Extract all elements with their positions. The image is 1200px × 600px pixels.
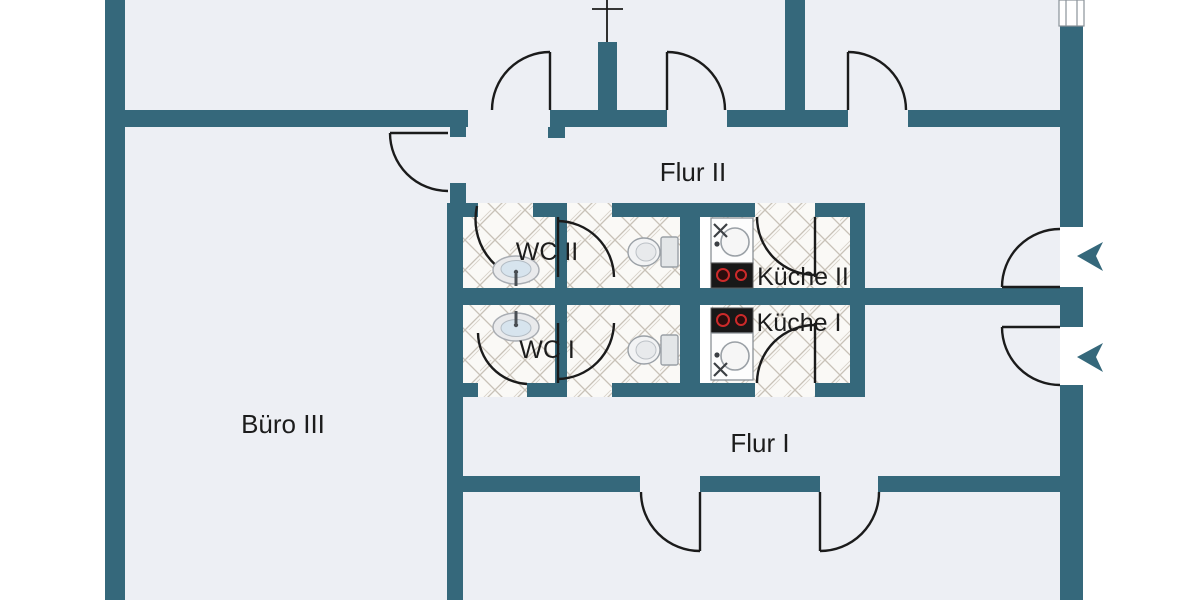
kitchen-unit-icon: [711, 218, 753, 288]
stove-icon: [711, 263, 753, 288]
wall-segment: [1060, 385, 1083, 600]
entrance-arrow-icon: [1077, 343, 1103, 372]
wall-segment: [598, 42, 617, 110]
room-label-kueche-i: Küche I: [757, 309, 842, 337]
wall-segment: [463, 476, 640, 492]
stove-icon: [711, 308, 753, 333]
wall-segment: [450, 127, 466, 137]
toilet-icon: [628, 335, 678, 365]
toilet-icon: [628, 237, 678, 267]
wall-segment: [447, 203, 478, 217]
wall-segment: [105, 110, 468, 127]
wall-segment: [450, 183, 466, 205]
room-label-flur-i: Flur I: [730, 428, 789, 458]
room-label-flur-ii: Flur II: [660, 157, 726, 187]
window-icon: [1059, 0, 1084, 26]
wall-segment: [105, 0, 125, 600]
wall-segment: [727, 110, 848, 127]
floorplan-page: Flur II WC II Küche II Küche I WC I Büro…: [0, 0, 1200, 600]
wall-segment: [548, 127, 565, 138]
wall-segment: [447, 203, 463, 600]
wall-segment: [550, 110, 667, 127]
wall-segment: [908, 110, 1060, 127]
floorplan-canvas: Flur II WC II Küche II Küche I WC I Büro…: [0, 0, 1200, 600]
entrance-arrow-icon: [1077, 242, 1103, 271]
wall-segment: [785, 0, 805, 110]
wall-segment: [1060, 25, 1083, 227]
room-label-kueche-ii: Küche II: [757, 263, 849, 291]
room-label-buero-iii: Büro III: [241, 409, 325, 439]
room-label-wc-i: WC I: [519, 336, 575, 364]
kitchen-unit-icon: [711, 308, 753, 380]
wall-segment: [447, 383, 478, 397]
wall-segment: [700, 476, 820, 492]
wall-segment: [878, 476, 1062, 492]
room-label-wc-ii: WC II: [516, 238, 579, 266]
